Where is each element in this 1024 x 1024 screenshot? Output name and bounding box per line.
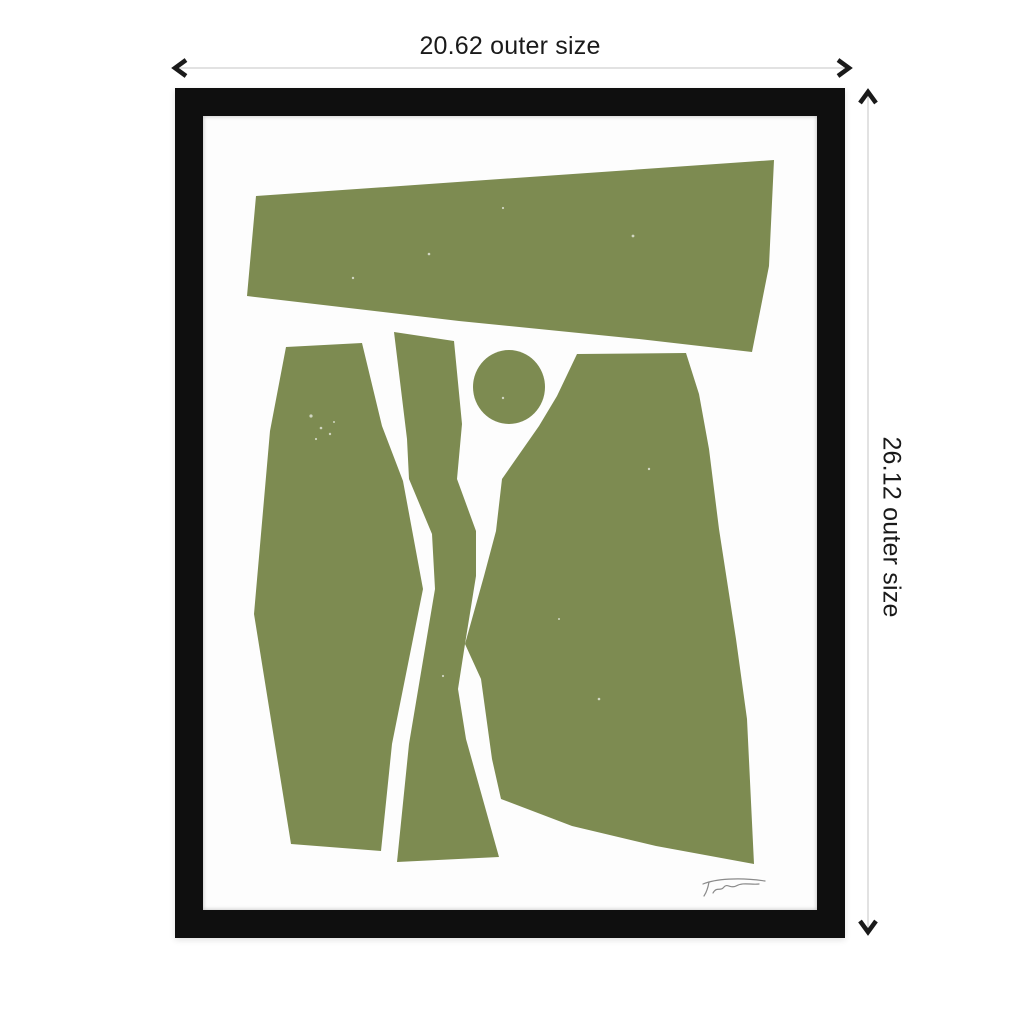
art-speckle (309, 414, 312, 417)
art-speckle (502, 207, 504, 209)
art-speckle (329, 433, 331, 435)
art-speckle (428, 253, 431, 256)
art-speckle (442, 675, 444, 677)
product-size-diagram: 20.62 outer size 26.12 outer size (0, 0, 1024, 1024)
art-speckle (315, 438, 317, 440)
artist-signature (703, 879, 765, 884)
art-speckle (598, 698, 601, 701)
art-speckle (352, 277, 354, 279)
art-shape-right-polygon (465, 353, 754, 864)
art-speckle (320, 427, 323, 430)
width-dimension-line (170, 56, 854, 80)
art-speckle (502, 397, 504, 399)
art-speckle (648, 468, 650, 470)
art-shape-circle (473, 350, 545, 424)
height-dimension-label: 26.12 outer size (877, 436, 906, 617)
artwork-svg (203, 116, 817, 910)
artist-signature (713, 884, 759, 893)
art-speckle (632, 235, 635, 238)
art-speckle (558, 618, 560, 620)
art-speckle (333, 421, 335, 423)
artist-signature (704, 882, 709, 896)
art-shape-top-band (247, 160, 774, 352)
art-shape-left-polygon (254, 343, 423, 851)
picture-frame (175, 88, 845, 938)
frame-mat (203, 116, 817, 910)
